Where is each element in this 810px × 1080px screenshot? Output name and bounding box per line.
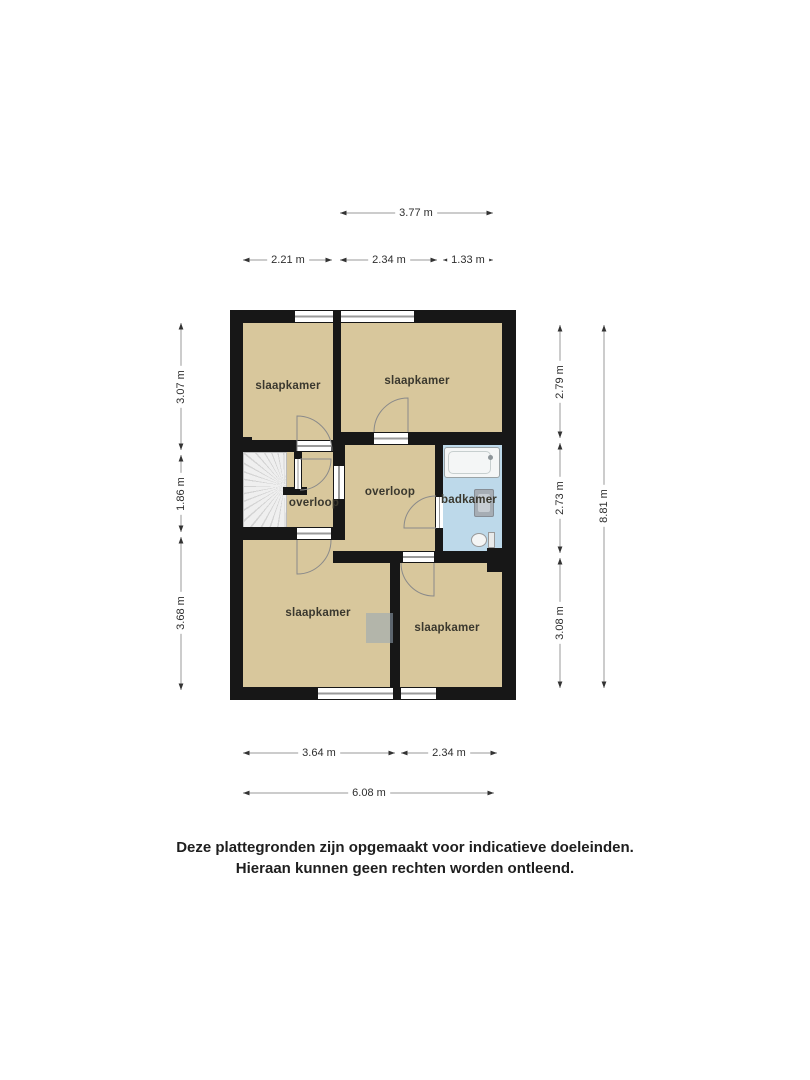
room-label-bedroom-tl: slaapkamer <box>255 380 320 392</box>
window-top-left <box>295 311 333 322</box>
door-sill-bedroom-tr <box>374 433 408 444</box>
door-sill-bedroom-tl <box>297 441 331 451</box>
wall-outer-right <box>502 310 516 700</box>
disclaimer-text: Deze plattegronden zijn opgemaakt voor i… <box>0 837 810 879</box>
dimension-label-right-bottom: 3.08 m <box>554 602 566 644</box>
wall-bedrooms-top-divider <box>333 310 341 452</box>
dimension-label-bottom-total: 6.08 m <box>348 787 390 799</box>
floorplan-page: slaapkamer slaapkamer overloop overloop … <box>0 0 810 1080</box>
wall-left-step <box>230 437 252 452</box>
wall-bathroom-corner <box>487 548 516 572</box>
dimension-label-bottom-right: 2.34 m <box>428 747 470 759</box>
dormer-recess <box>366 613 393 643</box>
wall-below-bedroom-tr <box>333 432 516 445</box>
room-label-bedroom-br: slaapkamer <box>414 622 479 634</box>
bathtub-icon <box>444 447 500 478</box>
wall-outer-left <box>230 310 243 700</box>
dimension-label-top-mid: 2.34 m <box>368 254 410 266</box>
room-label-bedroom-bl: slaapkamer <box>285 607 350 619</box>
toilet-tank <box>488 532 495 548</box>
dimension-label-bottom-left: 3.64 m <box>298 747 340 759</box>
dimension-label-right-total: 8.81 m <box>598 485 610 527</box>
dimension-label-top-right: 1.33 m <box>447 254 489 266</box>
dimension-label-left-mid: 1.86 m <box>175 473 187 515</box>
room-label-landing-left: overloop <box>289 497 339 509</box>
room-label-bathroom: badkamer <box>441 494 497 506</box>
opening-landings <box>334 466 344 499</box>
toilet-icon <box>471 531 495 549</box>
stairs-icon <box>243 452 287 532</box>
door-sill-bedroom-br <box>403 552 434 562</box>
door-sill-stairs <box>295 459 301 489</box>
dimension-label-left-top: 3.07 m <box>175 366 187 408</box>
room-label-bedroom-tr: slaapkamer <box>384 375 449 387</box>
window-top-right <box>341 311 414 322</box>
room-label-landing-center: overloop <box>365 486 415 498</box>
door-sill-bedroom-bl <box>297 528 331 539</box>
disclaimer-line-1: Deze plattegronden zijn opgemaakt voor i… <box>0 837 810 858</box>
bathtub-faucet <box>488 455 493 460</box>
dimension-label-left-bottom: 3.68 m <box>175 592 187 634</box>
dimension-label-right-top: 2.79 m <box>554 361 566 403</box>
dimension-label-top-total: 3.77 m <box>395 207 437 219</box>
window-bottom-right <box>401 688 436 699</box>
dimension-label-right-mid: 2.73 m <box>554 477 566 519</box>
dimension-label-top-left: 2.21 m <box>267 254 309 266</box>
bathtub-basin <box>448 451 491 474</box>
disclaimer-line-2: Hieraan kunnen geen rechten worden ontle… <box>0 858 810 879</box>
toilet-bowl <box>471 533 487 547</box>
window-bottom-left <box>318 688 393 699</box>
